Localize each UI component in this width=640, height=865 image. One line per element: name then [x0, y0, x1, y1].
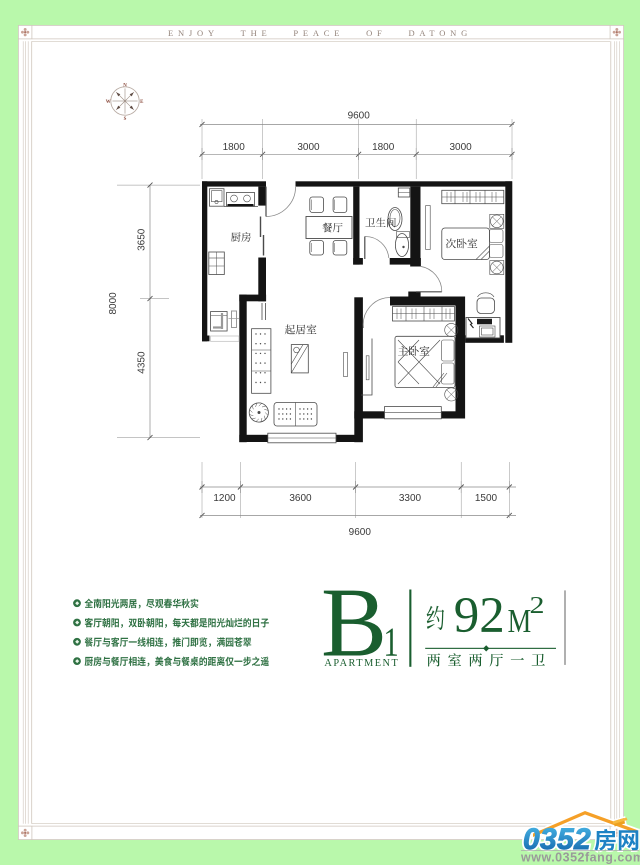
svg-text:3600: 3600 — [289, 493, 312, 504]
svg-text:9600: 9600 — [348, 111, 371, 122]
svg-text:2: 2 — [530, 592, 545, 619]
svg-text:N: N — [123, 84, 127, 89]
svg-text:9600: 9600 — [349, 527, 372, 538]
svg-text:3300: 3300 — [399, 493, 422, 504]
svg-text:M: M — [508, 602, 532, 640]
svg-text:1800: 1800 — [223, 142, 246, 153]
svg-text:8000: 8000 — [108, 292, 119, 315]
svg-text:3000: 3000 — [297, 142, 320, 153]
svg-text:APARTMENT: APARTMENT — [324, 658, 399, 669]
svg-text:www.0352fang.com: www.0352fang.com — [520, 851, 640, 865]
svg-text:3650: 3650 — [137, 228, 148, 251]
svg-text:1500: 1500 — [475, 493, 498, 504]
svg-text:4350: 4350 — [137, 351, 148, 374]
svg-text:92: 92 — [454, 588, 505, 644]
svg-text:1200: 1200 — [213, 493, 236, 504]
svg-text:1800: 1800 — [372, 142, 395, 153]
svg-text:3000: 3000 — [449, 142, 472, 153]
